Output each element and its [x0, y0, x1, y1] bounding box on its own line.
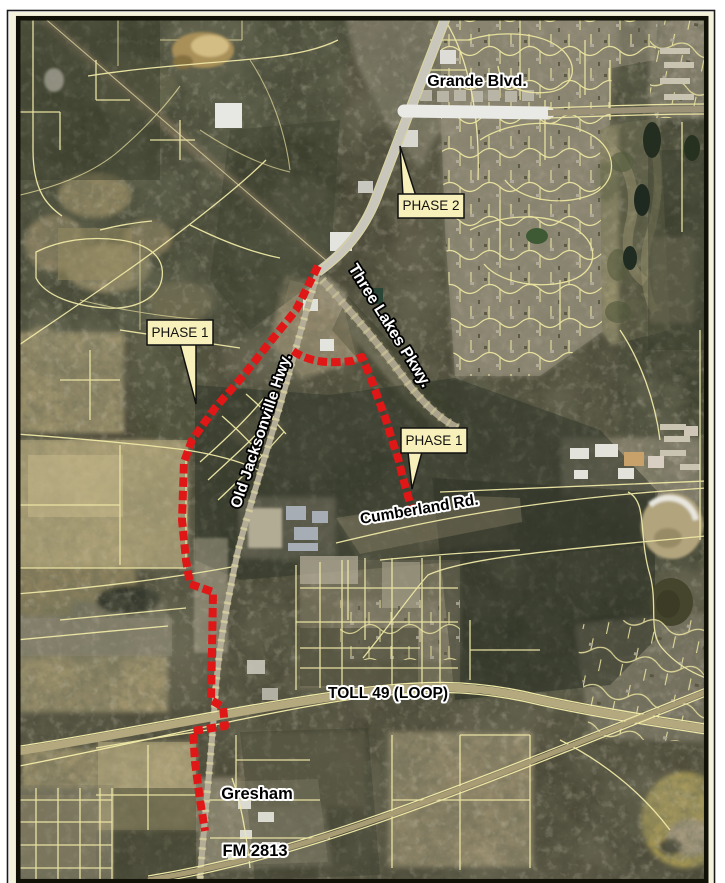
- svg-text:TOLL 49 (LOOP): TOLL 49 (LOOP): [328, 685, 448, 702]
- svg-text:PHASE 1: PHASE 1: [151, 325, 208, 340]
- svg-text:Gresham: Gresham: [221, 785, 293, 803]
- svg-text:Grande Blvd.: Grande Blvd.: [427, 73, 527, 90]
- svg-text:FM 2813: FM 2813: [222, 842, 287, 860]
- svg-text:PHASE 1: PHASE 1: [405, 433, 462, 448]
- svg-text:PHASE 2: PHASE 2: [402, 198, 459, 213]
